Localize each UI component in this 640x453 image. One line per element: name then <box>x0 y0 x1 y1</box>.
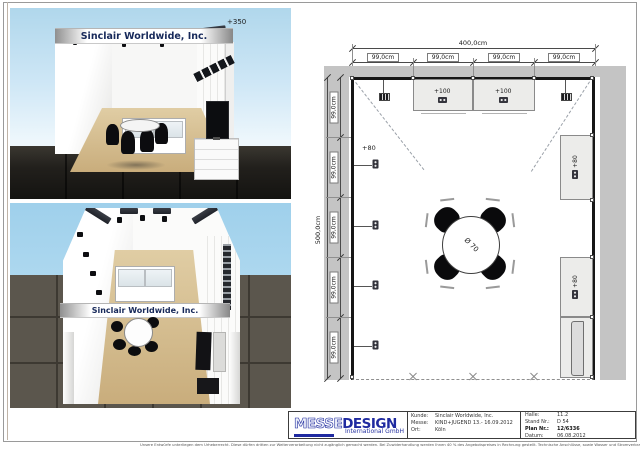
table-top <box>120 119 160 132</box>
wall-node <box>350 375 354 379</box>
field-standnr-label: Stand Nr.: <box>525 420 550 425</box>
dim-segment-label: 99,0cm <box>427 53 459 62</box>
front-column-right <box>229 332 240 404</box>
height-annotation: +350 <box>227 18 246 26</box>
front-column-left <box>63 332 74 404</box>
cabinet-height-label: +100 <box>434 88 450 95</box>
socket-icon <box>373 221 379 230</box>
dim-label-total-depth: 500,0cm <box>314 200 322 260</box>
fascia-band: Sinclair Worldwide, Inc. <box>60 303 230 318</box>
aisle-band-top <box>324 66 626 77</box>
back-counter <box>115 266 175 302</box>
socket-icon <box>373 160 379 169</box>
dim-line-segments-left <box>340 77 341 378</box>
counter-glass <box>118 269 145 287</box>
chair-icon <box>106 124 119 145</box>
extension-line <box>413 58 414 77</box>
socket-icon <box>438 97 447 103</box>
extension-line <box>473 58 474 77</box>
table-top <box>124 318 153 347</box>
field-halle-value: 11.2 <box>557 413 568 418</box>
wall-node <box>590 255 594 259</box>
dim-segment-label: 99,0cm <box>367 53 399 62</box>
table-diameter-label: Ø 70 <box>462 236 479 253</box>
spotlight-stem <box>565 80 566 93</box>
tv-stand <box>213 137 220 140</box>
sideboard <box>213 332 226 372</box>
title-block-divider <box>520 411 521 439</box>
dim-segment-label: 99,0cm <box>330 92 339 124</box>
spotlight-icon <box>561 93 572 101</box>
spotlight-stem <box>383 80 384 93</box>
wall-node <box>590 375 594 379</box>
wall-node <box>590 198 594 202</box>
field-plannr-value: 12/6336 <box>557 427 580 432</box>
wall-node <box>590 315 594 319</box>
cabinet-underline <box>421 113 466 114</box>
cabinet-top-2 <box>473 79 535 111</box>
extension-line <box>326 197 351 198</box>
title-block-divider <box>407 411 408 439</box>
socket-icon <box>572 170 578 179</box>
field-kunde-label: Kunde: <box>411 414 428 419</box>
fascia-text: Sinclair Worldwide, Inc. <box>81 31 208 42</box>
socket-stem <box>354 226 372 227</box>
extension-line <box>534 58 535 77</box>
cabinet-height-label: +80 <box>572 155 579 168</box>
field-messe-label: Messe: <box>411 421 428 426</box>
spotlight-icon <box>379 93 390 101</box>
wall-node <box>590 133 594 137</box>
field-messe-value: KIND+JUGEND 13.- 16.09.2012 <box>435 421 513 426</box>
open-edge-marker <box>408 372 418 382</box>
fascia-text: Sinclair Worldwide, Inc. <box>92 306 199 315</box>
extension-line <box>326 137 351 138</box>
field-standnr-value: D 54 <box>557 420 569 425</box>
dim-segment-label: 99,0cm <box>330 152 339 184</box>
spotlight-icon <box>83 252 89 257</box>
counter-glass <box>145 269 172 287</box>
table-circle: Ø 70 <box>442 216 500 274</box>
socket-stem <box>354 346 372 347</box>
field-halle-label: Halle: <box>525 413 539 418</box>
field-plannr-label: Plan Nr.: <box>525 427 549 432</box>
dim-line-total-width <box>352 48 595 49</box>
cabinet-underline <box>482 113 527 114</box>
socket-icon <box>499 97 508 103</box>
wall-node <box>350 76 354 80</box>
ceiling-beam <box>120 208 138 214</box>
wall-node <box>411 76 415 80</box>
socket-icon <box>572 290 578 299</box>
chair-icon <box>121 131 135 154</box>
dim-segment-label: 99,0cm <box>488 53 520 62</box>
open-edge-marker <box>529 372 539 382</box>
extension-line <box>595 44 596 66</box>
logo-bar <box>294 434 334 437</box>
field-kunde-value: Sinclair Worldwide, Inc. <box>435 414 493 419</box>
dim-segment-label: 99,0cm <box>548 53 580 62</box>
ceiling-brace-right <box>191 203 220 224</box>
fascia-band: Sinclair Worldwide, Inc. <box>55 28 233 44</box>
open-edge-marker <box>468 372 478 382</box>
tv-top-icon <box>571 321 584 376</box>
logo-subtitle: International GmbH <box>330 428 404 435</box>
tv-panel <box>195 332 211 371</box>
cabinet-right-1-label: +80 <box>571 153 579 181</box>
ceiling-beam <box>153 208 171 214</box>
cabinet-height-label: +80 <box>572 275 579 288</box>
chair-icon <box>128 346 141 356</box>
dim-segment-label: 99,0cm <box>330 212 339 244</box>
wall-node <box>590 76 594 80</box>
sideboard <box>194 138 239 180</box>
dim-label-total-width: 400,0cm <box>443 39 503 47</box>
tv-screen <box>206 101 229 139</box>
furniture-shadow <box>106 160 166 170</box>
dim-segment-label: 99,0cm <box>330 332 339 364</box>
low-cabinet <box>197 378 219 394</box>
aisle-band-right <box>600 66 626 380</box>
spotlight-icon <box>77 232 83 237</box>
extension-line <box>326 317 351 318</box>
render-front-view: Sinclair Worldwide, Inc. <box>10 8 291 199</box>
extension-line <box>326 257 351 258</box>
slat-wall <box>223 244 231 310</box>
socket-icon <box>373 341 379 350</box>
field-ort-label: Ort: <box>411 428 421 433</box>
extension-line <box>352 44 353 66</box>
wall-node <box>471 76 475 80</box>
wall-height-label: +80 <box>362 144 376 152</box>
field-datum-value: 06.08.2012 <box>557 434 586 439</box>
field-datum-label: Datum: <box>525 434 544 439</box>
socket-stem <box>354 165 372 166</box>
cabinet-height-label: +100 <box>495 88 511 95</box>
cabinet-top-1 <box>413 79 473 111</box>
socket-stem <box>354 286 372 287</box>
spotlight-icon <box>140 215 145 221</box>
socket-icon <box>373 281 379 290</box>
footer-disclaimer: Unsere Entwürfe unterliegen dem Urheberr… <box>140 443 636 447</box>
drawing-sheet: Sinclair Worldwide, Inc. +350 <box>0 0 640 453</box>
chair-icon <box>113 339 126 350</box>
spotlight-icon <box>90 271 96 276</box>
dim-segment-label: 99,0cm <box>330 272 339 304</box>
render-top-view: Sinclair Worldwide, Inc. <box>10 203 291 408</box>
dim-line-total-depth <box>327 77 328 378</box>
field-ort-value: Köln <box>435 428 446 433</box>
chair-icon <box>140 129 154 152</box>
sheet-border-inner <box>7 2 8 440</box>
spotlight-icon <box>117 217 122 223</box>
cabinet-right-2-label: +80 <box>571 273 579 301</box>
wall-node <box>532 76 536 80</box>
spotlight-icon <box>162 216 167 222</box>
spotlight-icon <box>96 290 102 295</box>
chair-icon <box>111 321 123 332</box>
